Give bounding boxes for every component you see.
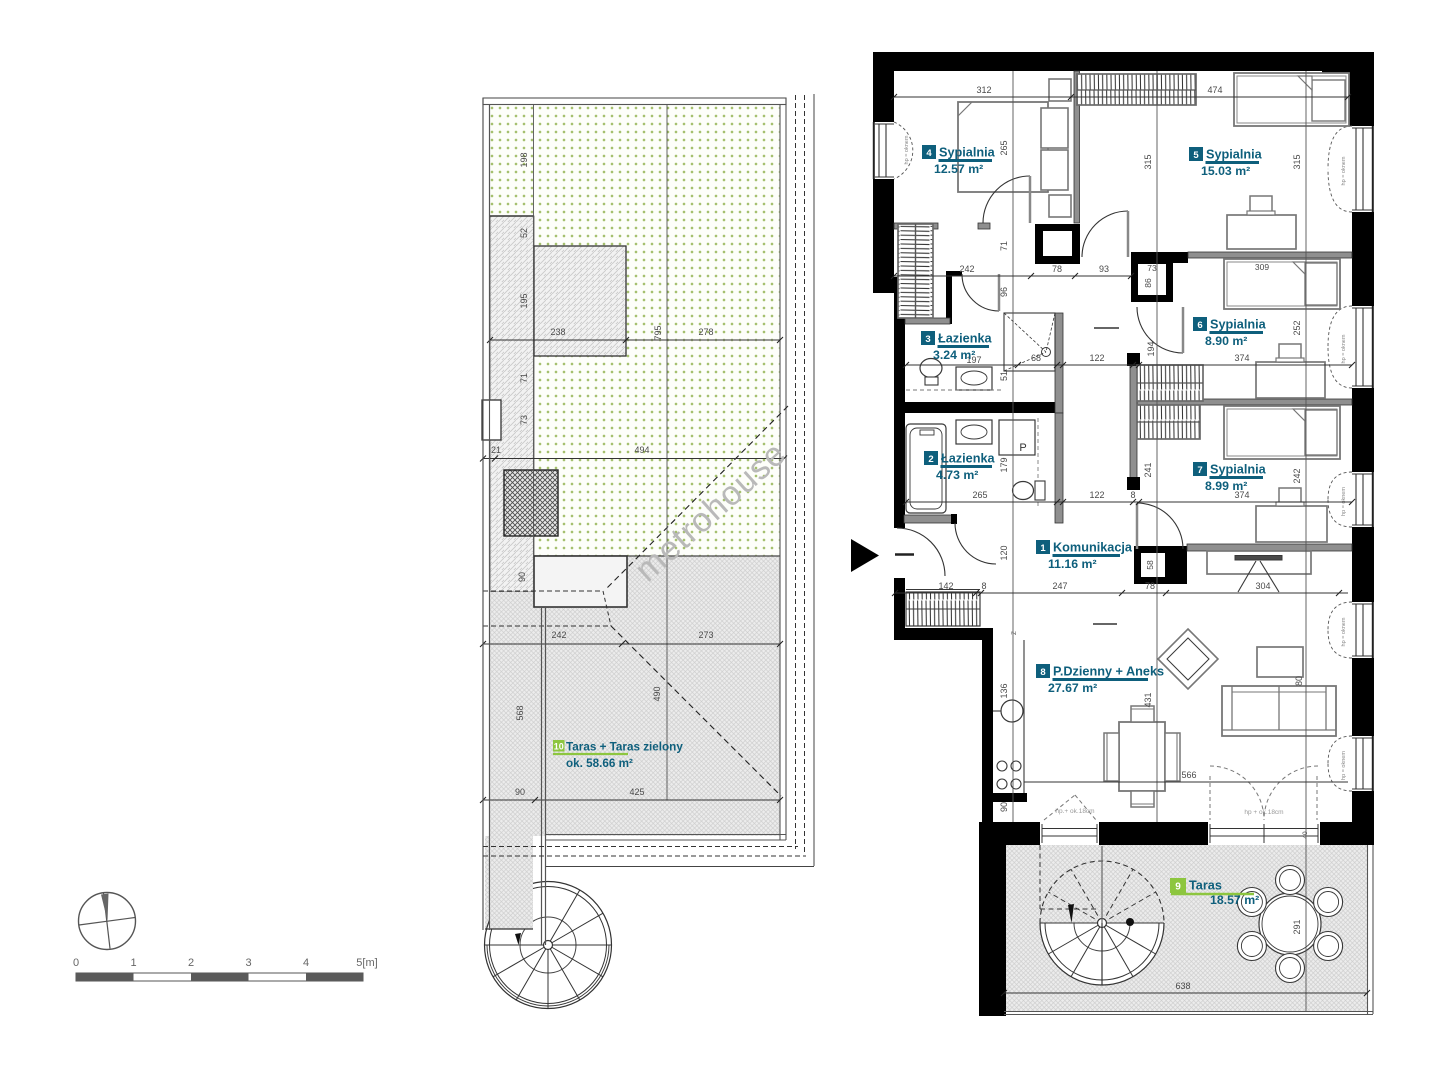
svg-text:273: 273 <box>698 630 713 640</box>
svg-text:198: 198 <box>519 152 529 167</box>
svg-text:73: 73 <box>1147 263 1157 273</box>
svg-text:8.99 m²: 8.99 m² <box>1205 479 1247 493</box>
svg-text:638: 638 <box>1175 981 1190 991</box>
svg-text:Komunikacja: Komunikacja <box>1053 541 1133 555</box>
svg-text:238: 238 <box>550 327 565 337</box>
svg-text:68: 68 <box>1031 353 1041 363</box>
svg-text:3: 3 <box>925 334 930 345</box>
svg-text:1: 1 <box>130 957 136 969</box>
svg-text:278: 278 <box>698 327 713 337</box>
svg-text:8.90 m²: 8.90 m² <box>1205 334 1247 348</box>
svg-text:2: 2 <box>188 957 194 969</box>
svg-text:0: 0 <box>73 957 79 969</box>
svg-text:1: 1 <box>1040 543 1046 554</box>
svg-text:4: 4 <box>926 148 932 159</box>
svg-text:Taras + Taras zielony: Taras + Taras zielony <box>566 741 683 754</box>
svg-text:12.57 m²: 12.57 m² <box>934 162 983 176</box>
svg-text:8: 8 <box>1040 667 1045 678</box>
svg-text:242: 242 <box>551 630 566 640</box>
svg-text:247: 247 <box>1052 581 1067 591</box>
svg-text:hp = oknem: hp = oknem <box>904 135 910 164</box>
svg-text:431: 431 <box>1143 692 1153 707</box>
svg-text:93: 93 <box>1099 264 1109 274</box>
svg-text:Sypialnia: Sypialnia <box>1210 463 1267 477</box>
svg-text:10: 10 <box>554 742 564 752</box>
svg-text:P.Dzienny + Aneks: P.Dzienny + Aneks <box>1053 665 1164 679</box>
svg-text:425: 425 <box>629 787 644 797</box>
svg-text:315: 315 <box>1292 154 1302 169</box>
svg-text:78: 78 <box>1145 581 1155 591</box>
svg-text:9: 9 <box>1175 882 1181 893</box>
svg-text:5[m]: 5[m] <box>356 957 377 969</box>
svg-text:6: 6 <box>1197 320 1202 331</box>
svg-text:2: 2 <box>928 454 933 465</box>
svg-text:194: 194 <box>1146 341 1156 356</box>
svg-text:hp = oknem: hp = oknem <box>1341 751 1347 780</box>
svg-text:242: 242 <box>959 264 974 274</box>
svg-text:11.16 m²: 11.16 m² <box>1048 557 1097 571</box>
svg-text:90: 90 <box>515 787 525 797</box>
svg-text:52: 52 <box>519 228 529 238</box>
svg-text:4: 4 <box>303 957 309 969</box>
svg-text:hp = oknem: hp = oknem <box>1341 334 1347 363</box>
svg-text:58: 58 <box>1145 560 1155 570</box>
svg-text:136: 136 <box>999 683 1009 698</box>
svg-text:122: 122 <box>1089 353 1104 363</box>
svg-text:122: 122 <box>1089 490 1104 500</box>
svg-text:73: 73 <box>519 415 529 425</box>
svg-text:78: 78 <box>1052 264 1062 274</box>
svg-text:309: 309 <box>1255 262 1269 272</box>
svg-text:265: 265 <box>972 490 987 500</box>
svg-text:5: 5 <box>1193 150 1199 161</box>
svg-text:142: 142 <box>938 581 953 591</box>
svg-text:86: 86 <box>1143 278 1153 288</box>
svg-text:3: 3 <box>245 957 251 969</box>
svg-text:179: 179 <box>999 457 1009 472</box>
svg-text:Sypialnia: Sypialnia <box>1210 318 1267 332</box>
svg-text:71: 71 <box>999 241 1009 251</box>
svg-text:291: 291 <box>1292 919 1302 934</box>
svg-text:80: 80 <box>1294 676 1304 686</box>
svg-text:8: 8 <box>981 581 986 591</box>
svg-text:Sypialnia: Sypialnia <box>939 146 996 160</box>
svg-text:hp = oknem: hp = oknem <box>1341 617 1347 646</box>
svg-text:hp = oknem: hp = oknem <box>1341 487 1347 516</box>
svg-text:15.03 m²: 15.03 m² <box>1201 164 1250 178</box>
svg-text:51: 51 <box>999 371 1009 381</box>
svg-text:71: 71 <box>519 373 529 383</box>
svg-text:568: 568 <box>515 705 525 720</box>
svg-text:315: 315 <box>1143 154 1153 169</box>
svg-text:hp.+ ok.18cm: hp.+ ok.18cm <box>1055 808 1094 815</box>
svg-text:304: 304 <box>1255 581 1270 591</box>
svg-text:Łazienka: Łazienka <box>938 332 993 346</box>
svg-text:hp + ok.18cm: hp + ok.18cm <box>1244 809 1283 816</box>
svg-text:Sypialnia: Sypialnia <box>1206 148 1263 162</box>
svg-text:40: 40 <box>1302 831 1309 839</box>
svg-text:120: 120 <box>999 545 1009 560</box>
svg-text:374: 374 <box>1234 353 1249 363</box>
svg-text:7: 7 <box>1197 465 1202 476</box>
svg-text:4.73 m²: 4.73 m² <box>936 468 978 482</box>
svg-text:18.57 m²: 18.57 m² <box>1210 893 1259 907</box>
svg-text:P: P <box>1019 442 1026 454</box>
svg-text:474: 474 <box>1207 85 1222 95</box>
svg-text:241: 241 <box>1143 462 1153 477</box>
svg-text:96: 96 <box>999 287 1009 297</box>
svg-text:8: 8 <box>1130 490 1135 500</box>
svg-text:795: 795 <box>653 325 663 340</box>
svg-text:90: 90 <box>999 802 1009 812</box>
svg-text:252: 252 <box>1292 320 1302 335</box>
svg-text:242: 242 <box>1292 468 1302 483</box>
svg-text:27.67 m²: 27.67 m² <box>1048 681 1097 695</box>
svg-text:490: 490 <box>652 686 662 701</box>
svg-text:ok. 58.66 m²: ok. 58.66 m² <box>566 757 633 770</box>
svg-text:hp = oknem: hp = oknem <box>1341 156 1347 185</box>
svg-text:Taras: Taras <box>1189 879 1222 893</box>
svg-text:195: 195 <box>519 293 529 308</box>
svg-text:Łazienka: Łazienka <box>941 452 996 466</box>
svg-text:494: 494 <box>634 445 649 455</box>
svg-text:312: 312 <box>976 85 991 95</box>
svg-text:265: 265 <box>999 140 1009 155</box>
svg-text:566: 566 <box>1181 770 1196 780</box>
svg-text:90: 90 <box>517 572 527 582</box>
svg-text:21: 21 <box>491 445 501 455</box>
svg-text:3.24 m²: 3.24 m² <box>933 348 975 362</box>
